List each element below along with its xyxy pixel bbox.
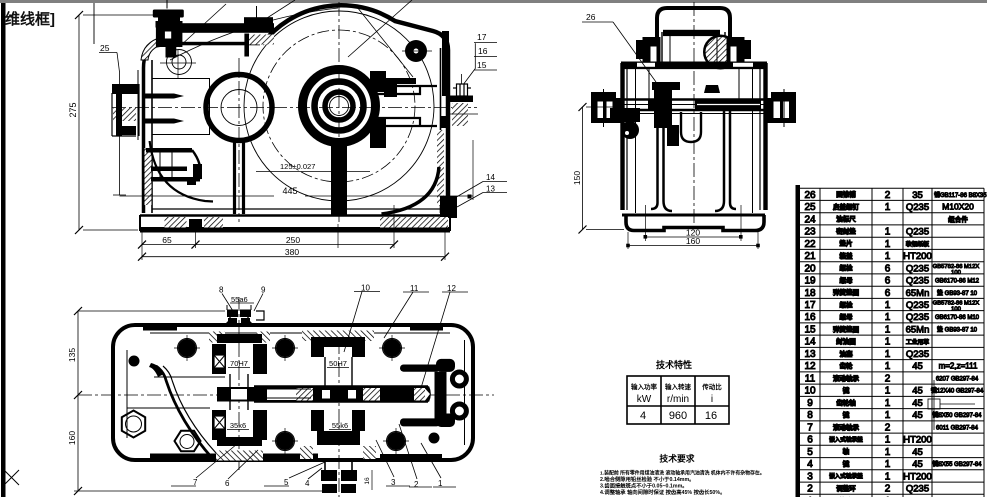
- svg-text:HT200: HT200: [903, 435, 932, 446]
- svg-text:18: 18: [804, 288, 816, 299]
- svg-text:125±0.027: 125±0.027: [280, 162, 315, 171]
- svg-text:轴: 轴: [843, 447, 850, 456]
- svg-text:45: 45: [912, 447, 923, 458]
- svg-text:5: 5: [807, 447, 813, 458]
- svg-text:25: 25: [804, 202, 816, 213]
- svg-text:工业用革: 工业用革: [906, 338, 929, 346]
- svg-text:1: 1: [885, 471, 891, 482]
- svg-text:垫片: 垫片: [840, 239, 853, 248]
- svg-text:垫 GB93-87 10: 垫 GB93-87 10: [937, 289, 978, 297]
- svg-text:键8X55 GB297-84: 键8X55 GB297-84: [932, 460, 982, 468]
- svg-text:齿轮轴: 齿轮轴: [836, 398, 856, 407]
- svg-text:160: 160: [686, 236, 700, 246]
- svg-text:8: 8: [219, 286, 224, 295]
- svg-text:HT200: HT200: [903, 251, 932, 262]
- svg-text:1: 1: [885, 202, 891, 213]
- svg-text:Q235: Q235: [906, 349, 929, 360]
- svg-text:M10X20: M10X20: [942, 202, 974, 212]
- svg-text:弹簧垫圈: 弹簧垫圈: [833, 324, 860, 333]
- svg-text:250: 250: [286, 235, 300, 245]
- svg-text:2: 2: [885, 423, 891, 434]
- svg-text:滚动轴承: 滚动轴承: [833, 373, 860, 382]
- svg-text:油塞: 油塞: [840, 349, 854, 358]
- svg-text:45: 45: [912, 459, 923, 470]
- svg-text:垫 GB93-87 10: 垫 GB93-87 10: [937, 326, 978, 334]
- svg-text:3.齿面接触斑点不小于0.05~0.1mm。: 3.齿面接触斑点不小于0.05~0.1mm。: [600, 482, 688, 490]
- svg-text:Q235: Q235: [906, 227, 929, 238]
- svg-text:螺母: 螺母: [840, 275, 854, 284]
- svg-text:嵌入式轴承盖: 嵌入式轴承盖: [829, 436, 863, 444]
- svg-text:65: 65: [162, 235, 172, 245]
- svg-text:4: 4: [807, 459, 813, 470]
- svg-text:13: 13: [804, 349, 816, 360]
- svg-text:17: 17: [477, 32, 487, 42]
- svg-text:50H7: 50H7: [329, 359, 347, 368]
- svg-text:7: 7: [807, 423, 813, 434]
- svg-text:2: 2: [414, 480, 419, 489]
- svg-text:销GB117-86 B8X35: 销GB117-86 B8X35: [934, 191, 987, 199]
- svg-text:滚动轴承: 滚动轴承: [833, 422, 860, 431]
- svg-text:Q235: Q235: [906, 312, 929, 323]
- svg-text:箱盖: 箱盖: [840, 251, 854, 260]
- svg-text:软钢纸板: 软钢纸板: [906, 240, 929, 248]
- svg-text:1: 1: [885, 312, 891, 323]
- svg-text:22: 22: [804, 239, 816, 250]
- svg-text:6: 6: [885, 276, 891, 287]
- svg-text:启盖螺钉: 启盖螺钉: [833, 202, 860, 211]
- svg-text:14: 14: [486, 173, 495, 182]
- svg-text:Q235: Q235: [906, 263, 929, 274]
- svg-text:14: 14: [804, 337, 816, 348]
- svg-text:1: 1: [885, 300, 891, 311]
- svg-text:100: 100: [951, 307, 961, 313]
- svg-text:1: 1: [885, 227, 891, 238]
- svg-text:23: 23: [804, 227, 816, 238]
- svg-text:15: 15: [804, 325, 816, 336]
- svg-text:16: 16: [705, 410, 717, 422]
- svg-text:16: 16: [804, 312, 816, 323]
- svg-text:15: 15: [477, 60, 487, 70]
- svg-text:35: 35: [912, 190, 923, 201]
- svg-text:45: 45: [912, 386, 923, 397]
- svg-text:6: 6: [225, 479, 230, 488]
- svg-text:m=2,z=111: m=2,z=111: [939, 362, 978, 371]
- svg-text:2: 2: [807, 484, 813, 495]
- svg-text:26: 26: [804, 190, 816, 201]
- svg-text:1: 1: [885, 410, 891, 421]
- svg-text:键12X40 GB297-84: 键12X40 GB297-84: [931, 387, 984, 395]
- svg-text:6011 GB297-84: 6011 GB297-84: [936, 426, 979, 432]
- svg-text:45: 45: [912, 361, 923, 372]
- svg-text:2: 2: [885, 190, 891, 201]
- svg-text:960: 960: [669, 410, 687, 422]
- svg-text:65Mn: 65Mn: [906, 325, 930, 336]
- svg-text:密封垫: 密封垫: [836, 226, 856, 235]
- svg-text:380: 380: [285, 247, 299, 257]
- svg-text:键: 键: [842, 410, 850, 419]
- svg-text:组合件: 组合件: [948, 214, 968, 223]
- svg-text:275: 275: [68, 102, 78, 117]
- svg-text:150: 150: [572, 171, 582, 185]
- svg-text:GB6170-86 M12: GB6170-86 M12: [935, 279, 980, 285]
- svg-text:油标尺: 油标尺: [836, 214, 856, 223]
- svg-text:Q235: Q235: [906, 202, 929, 213]
- svg-text:1: 1: [885, 447, 891, 458]
- svg-text:12: 12: [804, 361, 816, 372]
- svg-text:技术要求: 技术要求: [659, 453, 694, 464]
- svg-text:6: 6: [885, 288, 891, 299]
- svg-text:kW: kW: [637, 394, 652, 405]
- svg-text:16: 16: [364, 477, 371, 485]
- svg-text:螺栓: 螺栓: [840, 263, 854, 272]
- svg-text:圆锥销: 圆锥销: [836, 190, 856, 199]
- svg-text:45: 45: [912, 398, 923, 409]
- svg-text:20: 20: [804, 263, 816, 274]
- svg-text:4.调整轴承 轴向间隙时保证 按齿高45% 按齿长50%。: 4.调整轴承 轴向间隙时保证 按齿高45% 按齿长50%。: [600, 488, 725, 496]
- svg-text:9: 9: [807, 398, 813, 409]
- svg-text:调整环: 调整环: [836, 484, 856, 493]
- svg-text:弹簧垫圈: 弹簧垫圈: [833, 288, 860, 297]
- svg-text:2.啮合侧隙用铅丝检验 不小于0.14mm。: 2.啮合侧隙用铅丝检验 不小于0.14mm。: [600, 475, 694, 483]
- svg-text:1: 1: [885, 386, 891, 397]
- svg-text:6: 6: [885, 263, 891, 274]
- svg-text:55k6: 55k6: [332, 421, 348, 430]
- svg-text:6: 6: [807, 435, 813, 446]
- svg-text:21: 21: [804, 251, 816, 262]
- svg-text:24: 24: [804, 214, 816, 225]
- svg-text:25: 25: [100, 43, 110, 53]
- svg-text:嵌入式轴承盖: 嵌入式轴承盖: [829, 472, 863, 480]
- svg-text:6207 GB297-84: 6207 GB297-84: [936, 377, 979, 383]
- svg-text:135: 135: [67, 348, 77, 362]
- svg-text:传动比: 传动比: [701, 382, 722, 391]
- svg-text:4: 4: [640, 410, 646, 422]
- svg-text:1: 1: [885, 459, 891, 470]
- svg-text:1: 1: [885, 435, 891, 446]
- svg-text:1: 1: [885, 239, 891, 250]
- svg-text:键: 键: [842, 459, 850, 468]
- svg-text:4: 4: [305, 479, 310, 488]
- svg-text:输入功率: 输入功率: [631, 382, 658, 391]
- svg-text:1: 1: [885, 337, 891, 348]
- svg-text:1: 1: [885, 349, 891, 360]
- svg-text:10: 10: [804, 386, 816, 397]
- svg-text:45: 45: [912, 410, 923, 421]
- svg-text:1.装配前 所有零件用煤油清洗 滚动轴承用汽油清洗 机体内不: 1.装配前 所有零件用煤油清洗 滚动轴承用汽油清洗 机体内不许有杂物存在。: [600, 470, 765, 477]
- svg-text:Q235: Q235: [906, 484, 929, 495]
- svg-text:17: 17: [804, 300, 816, 311]
- svg-text:r/min: r/min: [667, 394, 689, 405]
- svg-text:GB6170-86 M10: GB6170-86 M10: [935, 315, 980, 321]
- svg-text:1: 1: [885, 361, 891, 372]
- svg-text:键: 键: [842, 386, 850, 395]
- svg-text:100: 100: [951, 270, 961, 276]
- svg-text:封油圈: 封油圈: [836, 337, 856, 346]
- svg-text:1: 1: [885, 398, 891, 409]
- svg-text:19: 19: [804, 276, 816, 287]
- svg-text:70H7: 70H7: [230, 359, 248, 368]
- svg-text:9: 9: [261, 286, 266, 295]
- svg-text:8: 8: [807, 410, 813, 421]
- svg-text:Q235: Q235: [906, 276, 929, 287]
- svg-text:齿轮: 齿轮: [840, 361, 854, 370]
- svg-text:Q235: Q235: [906, 300, 929, 311]
- svg-text:445: 445: [282, 186, 297, 196]
- svg-text:35k6: 35k6: [230, 421, 246, 430]
- svg-text:维线框]: 维线框]: [5, 10, 55, 28]
- svg-text:11: 11: [805, 374, 816, 385]
- svg-text:1: 1: [885, 251, 891, 262]
- svg-text:螺栓: 螺栓: [840, 300, 854, 309]
- svg-text:160: 160: [67, 431, 77, 445]
- svg-text:16: 16: [478, 46, 488, 56]
- svg-text:26: 26: [586, 12, 596, 22]
- svg-text:i: i: [711, 394, 713, 405]
- svg-text:65Mn: 65Mn: [906, 288, 930, 299]
- svg-text:技术特性: 技术特性: [656, 359, 692, 370]
- svg-text:键8X50 GB297-84: 键8X50 GB297-84: [932, 411, 982, 419]
- svg-text:螺母: 螺母: [840, 312, 854, 321]
- svg-text:1: 1: [885, 325, 891, 336]
- svg-text:输入转速: 输入转速: [665, 382, 692, 391]
- svg-text:2: 2: [885, 484, 891, 495]
- svg-text:HT200: HT200: [903, 471, 932, 482]
- svg-text:2: 2: [885, 374, 891, 385]
- svg-text:3: 3: [807, 471, 813, 482]
